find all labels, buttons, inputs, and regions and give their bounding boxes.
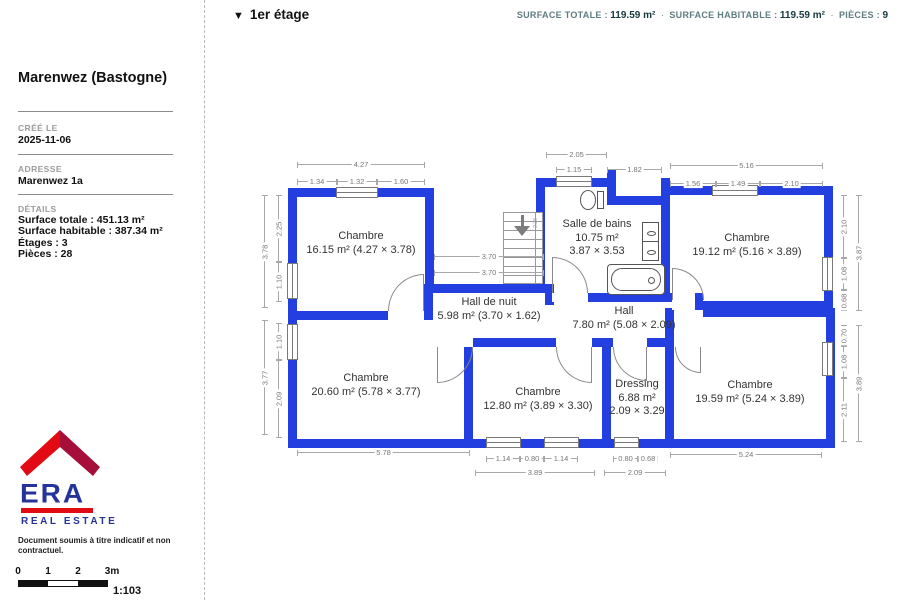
window xyxy=(336,187,378,198)
toilet-tank-icon xyxy=(597,191,604,209)
sink-handle-icon xyxy=(647,250,656,255)
floor-selector[interactable]: ▼1er étage xyxy=(233,7,309,22)
era-logo: ERA xyxy=(20,479,85,509)
scale-bar xyxy=(18,580,108,587)
dim: 1.60 xyxy=(377,181,425,182)
room-label-chambre-4: Chambre12.80 m² (3.89 × 3.30) xyxy=(483,386,592,413)
dim: 1.32 xyxy=(337,181,377,182)
window xyxy=(287,324,298,360)
dim: 0.68 xyxy=(638,458,658,459)
sink-cabinet-icon xyxy=(642,241,659,261)
pieces-value: 9 xyxy=(882,10,888,21)
dim: 3.87 xyxy=(858,195,859,311)
address-value: Marenwez 1a xyxy=(18,175,83,187)
dim: 2.09 xyxy=(604,472,666,473)
sidebar-divider xyxy=(204,0,205,600)
dim: 1.10 xyxy=(278,323,279,360)
exterior-notch xyxy=(607,170,661,205)
scale-tick-2: 2 xyxy=(75,566,81,577)
room-label-hall-de-nuit: Hall de nuit5.98 m² (3.70 × 1.62) xyxy=(437,296,540,323)
dim: 3.77 xyxy=(264,320,265,435)
room-label-chambre-1: Chambre16.15 m² (4.27 × 3.78) xyxy=(306,230,415,257)
dim: 4.27 xyxy=(297,164,425,165)
bathtub-icon xyxy=(607,264,665,295)
dim: 1.08 xyxy=(843,258,844,290)
dim: 2.05 xyxy=(546,154,607,155)
dim: 3.70 xyxy=(434,256,544,257)
dim: 3.89 xyxy=(858,325,859,442)
dim: 3.89 xyxy=(475,472,595,473)
hall-passage xyxy=(545,305,554,338)
room-label-chambre-3: Chambre20.60 m² (5.78 × 3.77) xyxy=(311,372,420,399)
address-label: ADRESSE xyxy=(18,164,62,174)
door-opening xyxy=(552,293,588,302)
pieces-label: PIÈCES : xyxy=(839,10,880,20)
stats-bar: SURFACE TOTALE : 119.59 m² · SURFACE HAB… xyxy=(517,10,888,21)
dim: 0.68 xyxy=(843,290,844,311)
disclaimer-text: Document soumis à titre indicatif et non… xyxy=(18,536,176,555)
door-opening xyxy=(437,338,473,347)
scale-tick-1: 1 xyxy=(45,566,51,577)
dim: 3.70 xyxy=(434,272,544,273)
divider-line xyxy=(18,194,173,195)
scale-tick-0: 0 xyxy=(15,566,21,577)
divider-line xyxy=(18,154,173,155)
window xyxy=(822,257,833,291)
scale-tick-3: 3m xyxy=(105,566,119,577)
dim: 1.34 xyxy=(297,181,337,182)
separator: · xyxy=(658,10,667,20)
dim: 0.80 xyxy=(520,458,544,459)
door-opening xyxy=(388,311,424,320)
separator: · xyxy=(827,10,836,20)
floor-label: 1er étage xyxy=(250,7,309,22)
dim: 2.25 xyxy=(278,195,279,262)
dim: 3.78 xyxy=(264,195,265,308)
created-label: CRÉÉ LE xyxy=(18,123,58,133)
surface-habitable-label: SURFACE HABITABLE : xyxy=(669,10,777,20)
details-list: Surface totale : 451.13 m² Surface habit… xyxy=(18,215,163,261)
dim: 1.15 xyxy=(556,169,592,170)
stairs-dim-label: 2.28 xyxy=(533,218,539,228)
dim: 2.11 xyxy=(843,378,844,442)
dim: 2.10 xyxy=(843,195,844,258)
window xyxy=(822,342,833,376)
property-title: Marenwez (Bastogne) xyxy=(18,70,167,86)
sink-handle-icon xyxy=(647,231,656,236)
dim: 2.10 xyxy=(760,183,823,184)
bathtub-drain-icon xyxy=(648,277,655,284)
dim: 1.08 xyxy=(843,346,844,378)
stairs-down-arrow-icon xyxy=(514,226,530,236)
dim: 2.09 xyxy=(278,360,279,438)
dim: 1.49 xyxy=(716,183,760,184)
dim: 1.82 xyxy=(607,169,662,170)
details-label: DÉTAILS xyxy=(18,204,57,214)
window xyxy=(556,176,592,187)
room-label-chambre-5: Chambre19.59 m² (5.24 × 3.89) xyxy=(695,379,804,406)
room-label-hall: Hall7.80 m² (5.08 × 2.09) xyxy=(572,305,675,332)
room-label-chambre-2: Chambre19.12 m² (5.16 × 3.89) xyxy=(692,232,801,259)
dim: 1.10 xyxy=(278,262,279,302)
era-logo-subtitle: REAL ESTATE xyxy=(21,516,117,527)
detail-pieces: Pièces : 28 xyxy=(18,249,163,260)
era-logo-bar xyxy=(21,508,93,513)
dim: 5.16 xyxy=(670,165,823,166)
era-roof-icon xyxy=(20,430,100,478)
dim: 0.70 xyxy=(843,325,844,346)
room-label-salle-de-bains: Salle de bains10.75 m²3.87 × 3.53 xyxy=(562,218,631,259)
wall-patch xyxy=(674,310,703,338)
dim: 1.14 xyxy=(486,458,520,459)
divider-line xyxy=(18,111,173,112)
scale-ratio: 1:103 xyxy=(113,585,141,597)
window xyxy=(614,437,639,448)
door-opening xyxy=(675,338,701,347)
toilet-icon xyxy=(580,190,596,210)
surface-totale-label: SURFACE TOTALE : xyxy=(517,10,608,20)
window xyxy=(544,437,579,448)
dim: 5.78 xyxy=(297,452,470,453)
room-label-dressing: Dressing6.88 m²2.09 × 3.29 xyxy=(609,378,664,419)
dim: 1.14 xyxy=(544,458,578,459)
door-opening xyxy=(613,338,647,347)
surface-totale-value: 119.59 m² xyxy=(610,10,655,21)
sink-cabinet-icon xyxy=(642,222,659,242)
door-opening xyxy=(556,338,592,347)
created-value: 2025-11-06 xyxy=(18,134,71,146)
window xyxy=(287,263,298,299)
triangle-down-icon: ▼ xyxy=(233,10,244,22)
dim: 5.24 xyxy=(670,454,822,455)
floorplan-page: ▼1er étage SURFACE TOTALE : 119.59 m² · … xyxy=(0,0,900,600)
window xyxy=(486,437,521,448)
dim: 1.56 xyxy=(670,183,716,184)
surface-habitable-value: 119.59 m² xyxy=(780,10,825,21)
dim: 0.80 xyxy=(613,458,638,459)
